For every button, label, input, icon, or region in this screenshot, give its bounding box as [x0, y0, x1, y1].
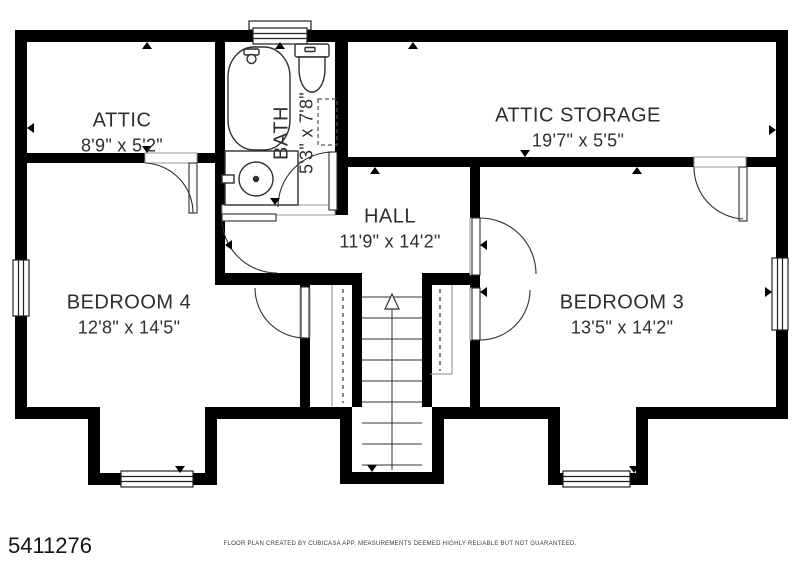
closet-right — [430, 285, 452, 374]
window-left — [13, 260, 29, 316]
floor-plan-drawing — [0, 0, 800, 564]
window-bedroom3 — [563, 471, 630, 487]
room-dimensions: 5'3" x 7'8" — [297, 92, 318, 174]
room-dimensions: 12'8" x 14'5" — [67, 318, 192, 339]
stairs-up-arrow — [385, 294, 399, 309]
window-right — [772, 258, 788, 330]
floor-plan: ATTIC 8'9" x 5'2" BATH 5'3" x 7'8" ATTIC… — [0, 0, 800, 564]
staircase — [362, 294, 422, 470]
room-label-attic: ATTIC 8'9" x 5'2" — [81, 110, 163, 157]
room-label-bedroom3: BEDROOM 3 13'5" x 14'2" — [560, 292, 685, 339]
door-bedroom3-closet — [472, 288, 530, 340]
room-dimensions: 11'9" x 14'2" — [339, 232, 440, 253]
window-top — [249, 21, 311, 44]
room-dimensions: 19'7" x 5'5" — [495, 131, 661, 152]
disclaimer-text: FLOOR PLAN CREATED BY CUBICASA APP. MEAS… — [224, 541, 577, 547]
bath-dashed-area — [318, 99, 337, 145]
room-name: BATH — [271, 92, 294, 174]
closet-left — [332, 285, 343, 406]
toilet-icon — [295, 44, 329, 92]
exterior-walls — [15, 30, 788, 485]
listing-number: 5411276 — [8, 533, 92, 559]
room-label-bath: BATH 5'3" x 7'8" — [271, 92, 318, 174]
room-name: BEDROOM 3 — [560, 292, 685, 315]
door-bedroom3-entry — [472, 218, 536, 275]
room-name: HALL — [339, 206, 440, 229]
room-name: BEDROOM 4 — [67, 292, 192, 315]
window-bedroom4 — [121, 471, 193, 487]
door-attic-bedroom4 — [145, 163, 197, 213]
room-dimensions: 8'9" x 5'2" — [81, 136, 163, 157]
room-label-bedroom4: BEDROOM 4 12'8" x 14'5" — [67, 292, 192, 339]
door-attic-storage — [694, 167, 747, 221]
room-name: ATTIC — [81, 110, 163, 133]
room-dimensions: 13'5" x 14'2" — [560, 318, 685, 339]
room-name: ATTIC STORAGE — [495, 105, 661, 128]
room-label-attic-storage: ATTIC STORAGE 19'7" x 5'5" — [495, 105, 661, 152]
room-label-hall: HALL 11'9" x 14'2" — [339, 206, 440, 253]
door-bedroom4-closet — [255, 287, 309, 338]
